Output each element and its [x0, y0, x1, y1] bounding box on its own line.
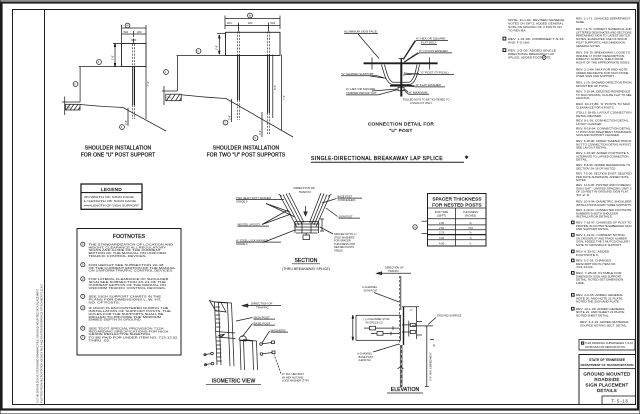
svg-text:W: W — [249, 14, 252, 18]
svg-text:STATE OF TENNESSEE: STATE OF TENNESSEE — [589, 358, 625, 362]
svg-text:2: 2 — [82, 277, 84, 281]
svg-text:DETAIL.: DETAIL. — [576, 158, 589, 162]
svg-text:OVER SIGN AND SUPPORT.: OVER SIGN AND SUPPORT. — [576, 74, 615, 78]
svg-text:"U" POST (TYPICAL): "U" POST (TYPICAL) — [420, 71, 449, 75]
svg-text:"U" POST: "U" POST — [389, 128, 412, 133]
svg-text:DETAIL REVISED.: DETAIL REVISED. — [576, 114, 603, 118]
svg-text:POST SIZE: POST SIZE — [435, 210, 449, 214]
svg-text:3: 3 — [254, 136, 256, 140]
svg-text:SOURCE NOTING SECT. DETAIL.: SOURCE NOTING SECT. DETAIL. — [580, 323, 628, 327]
svg-text:5: 5 — [82, 263, 84, 267]
svg-text:SECTION 2A-18 OF MUTCD.: SECTION 2A-18 OF MUTCD. — [576, 166, 617, 170]
svg-text:SIGN POST: SIGN POST — [364, 288, 379, 292]
svg-text:2'-6": 2'-6" — [111, 55, 115, 60]
svg-text:ROADSIDE: ROADSIDE — [594, 377, 619, 382]
svg-text:2.00: 2.00 — [439, 221, 445, 225]
svg-text:W/2: W/2 — [137, 30, 142, 34]
svg-text:SPACER THICKNESS: SPACER THICKNESS — [432, 197, 481, 202]
svg-text:7'-0": 7'-0" — [146, 81, 150, 86]
svg-text:¾: ¾ — [469, 241, 472, 245]
svg-text:⅜" NYLON WASHER: ⅜" NYLON WASHER — [419, 49, 448, 53]
svg-text:NAME.: NAME. — [576, 20, 585, 24]
svg-text:2: 2 — [165, 70, 167, 74]
svg-text:LINE.: LINE. — [576, 281, 585, 285]
svg-text:( ) U-CHANNEL STUD: ( ) U-CHANNEL STUD — [364, 317, 390, 321]
svg-text:GENERAL NOTES.: GENERAL NOTES. — [576, 44, 601, 48]
svg-text:⅜" MAXIMUM: ⅜" MAXIMUM — [409, 90, 428, 94]
svg-text:SECTION: SECTION — [294, 258, 317, 264]
svg-text:TRAFFIC: TRAFFIC — [299, 190, 312, 194]
svg-text:UNIFORM TRAFFIC CONTROL DEVICE: UNIFORM TRAFFIC CONTROL DEVICES. — [89, 286, 167, 290]
svg-text:1: 1 — [197, 49, 199, 53]
svg-text:7/16: 7/16 — [468, 227, 473, 230]
svg-text:TO 2'-6.: TO 2'-6. — [576, 193, 590, 197]
svg-text:TRAFFIC: TRAFFIC — [256, 306, 269, 310]
svg-text:NOTE TO CROSSBUCK SUPPORT.: NOTE TO CROSSBUCK SUPPORT. — [576, 243, 622, 247]
svg-text:(THRU BREAKAWAY SPLICE): (THRU BREAKAWAY SPLICE) — [282, 267, 330, 271]
svg-text:LOCK WASHER (TYP.): LOCK WASHER (TYP.) — [282, 379, 309, 383]
svg-text:5'-0": 5'-0" — [273, 85, 277, 90]
svg-text:FOR TWO "U" POST SUPPORTS: FOR TWO "U" POST SUPPORTS — [207, 152, 286, 158]
svg-text:⅜: ⅜ — [469, 221, 472, 225]
svg-text:3'-6": 3'-6" — [258, 130, 262, 135]
svg-text:FOR NESTED POSTS: FOR NESTED POSTS — [432, 202, 482, 207]
svg-text:MOUNT BID OF TOTAL.: MOUNT BID OF TOTAL. — [576, 84, 610, 88]
svg-text:GROUND MOUNTED: GROUND MOUNTED — [583, 372, 630, 377]
svg-text:DEPARTMENT OF TRANSPORTATION: DEPARTMENT OF TRANSPORTATION — [581, 363, 635, 367]
svg-text:W/4: W/4 — [227, 21, 232, 25]
svg-text:3'-6": 3'-6" — [124, 120, 128, 125]
svg-text:ALUMINUM SIGN FACE: ALUMINUM SIGN FACE — [344, 30, 377, 34]
svg-text:4: 4 — [82, 306, 84, 310]
svg-text:NOTED.: NOTED. — [576, 178, 587, 182]
svg-text:GROUND SURFACE: GROUND SURFACE — [437, 314, 462, 318]
svg-text:W/2: W/2 — [124, 30, 129, 34]
svg-text:3.00: 3.00 — [439, 236, 445, 240]
svg-text:TRAFFIC CONTROL DEVICES.: TRAFFIC CONTROL DEVICES. — [89, 254, 148, 258]
svg-text:AND SUPPORT DETAIL.: AND SUPPORT DETAIL. — [576, 227, 610, 231]
svg-text:4": 4" — [410, 308, 412, 312]
svg-text:✱: ✱ — [465, 155, 469, 161]
svg-text:CLEARANCE FOR 6 POSTS.: CLEARANCE FOR 6 POSTS. — [576, 105, 615, 109]
svg-text:THRU .03.: THRU .03. — [89, 339, 111, 343]
svg-text:CONNECTION DETAIL FOR: CONNECTION DETAIL FOR — [368, 122, 435, 127]
svg-text:SEE LAYOUT DETAIL.: SEE LAYOUT DETAIL. — [576, 146, 608, 150]
svg-text:W/4: W/4 — [271, 21, 276, 25]
svg-text:LEGEND: LEGEND — [101, 187, 122, 192]
svg-text:THIS DRAWING SUPERSEDES T-S-16: THIS DRAWING SUPERSEDES T-S-16 — [585, 341, 634, 345]
svg-text:TO REV-BA.: TO REV-BA. — [508, 29, 527, 33]
svg-text:W/2: W/2 — [248, 21, 253, 25]
svg-text:W=WIDTH OF SIGN FACE: W=WIDTH OF SIGN FACE — [84, 195, 134, 199]
svg-text:FOR ONE "U" POST SUPPORT: FOR ONE "U" POST SUPPORT — [81, 152, 156, 158]
svg-text:AND T-S-16A.: AND T-S-16A. — [508, 41, 530, 45]
svg-text:⅝: ⅝ — [469, 236, 472, 240]
svg-text:EMBED DEPTH IN GROUND.: EMBED DEPTH IN GROUND. — [89, 318, 143, 322]
svg-text:W/ SPLICE (2): W/ SPLICE (2) — [366, 320, 383, 324]
svg-text:3'-6": 3'-6" — [228, 115, 232, 120]
svg-text:FOOTNOTE 6.: FOOTNOTE 6. — [576, 253, 599, 257]
svg-text:A SNUG FIT ONLY.: A SNUG FIT ONLY. — [410, 101, 433, 105]
svg-text:SINGLE-DIRECTIONAL BREAKAWAY L: SINGLE-DIRECTIONAL BREAKAWAY LAP SPLICE — [311, 156, 443, 162]
svg-text:7: 7 — [82, 335, 84, 339]
svg-text:1: 1 — [82, 242, 84, 246]
svg-text:(LB/FT): (LB/FT) — [437, 214, 446, 218]
svg-text:3'-0" MIN. EMBEDMENT: 3'-0" MIN. EMBEDMENT — [429, 352, 433, 381]
svg-text:(LENGTH): (LENGTH) — [359, 358, 371, 362]
svg-text:APPROVED FOR REPRODUCTION: APPROVED FOR REPRODUCTION — [585, 345, 625, 349]
svg-text:3: 3 — [82, 294, 84, 298]
svg-text:⅜": ⅜" — [432, 343, 436, 346]
svg-text:SHOULDER INSTALLATION: SHOULDER INSTALLATION — [85, 146, 152, 152]
svg-text:4.00: 4.00 — [439, 241, 445, 245]
svg-text:FOOTNOTES: FOOTNOTES — [113, 234, 146, 240]
svg-text:NO. OF POSTS.: NO. OF POSTS. — [89, 300, 121, 304]
svg-text:713-13.02.: 713-13.02. — [576, 265, 594, 269]
svg-text:LENGTHS.: LENGTHS. — [576, 96, 590, 100]
svg-text:THICKNESS: THICKNESS — [463, 210, 478, 214]
svg-text:TRAFFIC: TRAFFIC — [388, 269, 399, 273]
svg-text:DETAILS: DETAILS — [597, 388, 617, 393]
svg-text:⅜" FLAT WASHER: ⅜" FLAT WASHER — [416, 83, 442, 87]
svg-text:LAYOUT CHANGED.: LAYOUT CHANGED. — [576, 122, 602, 126]
svg-text:(INCHES): (INCHES) — [465, 214, 477, 218]
svg-text:3-17-08 SIGNS6.DGN RJ STAND: 3-17-08 SIGNS6.DGN RJ STANDARD DRAWING F… — [36, 288, 40, 403]
svg-text:⟷=LENGTH OF SIGN SUPPORT: ⟷=LENGTH OF SIGN SUPPORT — [84, 203, 140, 207]
svg-text:NOTED THE SIGN AND PLATE.: NOTED THE SIGN AND PLATE. — [576, 300, 620, 304]
svg-text:INSTALLATION DETAILS.: INSTALLATION DETAILS. — [576, 215, 613, 219]
svg-text:SHOULDER INSTALLATION: SHOULDER INSTALLATION — [213, 146, 280, 152]
svg-text:ON UNIFORM TRAFFIC CONTROL DEV: ON UNIFORM TRAFFIC CONTROL DEVICES. — [89, 269, 174, 273]
svg-text:TABLE): TABLE) — [334, 249, 343, 253]
svg-text:1: 1 — [98, 60, 100, 64]
svg-text:NOTED SHEET DETAIL.: NOTED SHEET DETAIL. — [576, 314, 610, 318]
svg-text:T-S-16: T-S-16 — [611, 398, 628, 403]
svg-text:SIGN AND SUPPORT CHANGED.: SIGN AND SUPPORT CHANGED. — [576, 133, 620, 137]
svg-text:SIGN PLACEMENT: SIGN PLACEMENT — [586, 383, 629, 388]
svg-text:7'-0": 7'-0" — [282, 95, 286, 100]
svg-text:W: W — [126, 24, 129, 28]
svg-text:2: 2 — [74, 82, 76, 86]
svg-text:3: 3 — [224, 121, 226, 125]
svg-text:INSTALLATIONS DOWN THREE SUPPO: INSTALLATIONS DOWN THREE SUPPORTS. — [576, 203, 632, 207]
svg-text:L=LENGTH OF SIGN FACE: L=LENGTH OF SIGN FACE — [84, 199, 136, 203]
svg-text:PLOTTED FROM MICROSTATION DESI: PLOTTED FROM MICROSTATION DESIGN FILE AN… — [40, 283, 44, 403]
svg-text:ISOMETRIC VIEW: ISOMETRIC VIEW — [212, 378, 256, 384]
svg-text:2'-6": 2'-6" — [215, 45, 219, 50]
svg-text:3: 3 — [121, 125, 123, 129]
svg-text:FLAT BOLT: FLAT BOLT — [421, 41, 437, 45]
svg-text:"U" SHAPED SUPPORT: "U" SHAPED SUPPORT — [341, 72, 374, 76]
svg-text:6: 6 — [82, 326, 84, 330]
svg-text:TAMPER PROOF NUT: TAMPER PROOF NUT — [346, 91, 377, 95]
svg-text:GRADE REFLECTIVE SHEETING.: GRADE REFLECTIVE SHEETING. — [89, 332, 152, 336]
svg-text:2%: 2% — [167, 96, 171, 100]
svg-text:2.50: 2.50 — [439, 226, 445, 230]
svg-text:HIGHT OF THE APPROPRIATE SIGNS: HIGHT OF THE APPROPRIATE SIGNS. — [576, 61, 631, 65]
svg-text:ELEVATION: ELEVATION — [391, 387, 420, 393]
